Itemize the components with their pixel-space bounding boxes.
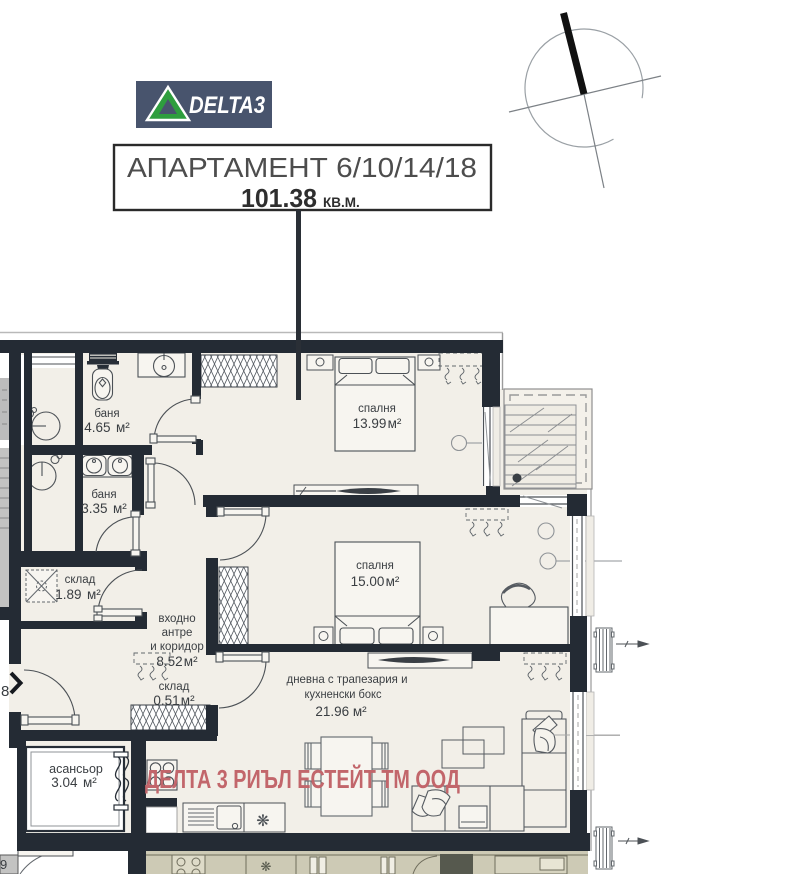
svg-text:1.89 м²: 1.89 м² [55,587,101,602]
svg-text:асансьор: асансьор [49,762,103,776]
svg-text:15.00 м²: 15.00 м² [351,574,400,589]
svg-text:АПАРТАМЕНТ 6/10/14/18: АПАРТАМЕНТ 6/10/14/18 [127,152,477,183]
svg-text:13.99 м²: 13.99 м² [353,416,402,431]
svg-text:баня: баня [94,408,119,420]
svg-text:КВ.М.: КВ.М. [323,195,360,210]
svg-text:8: 8 [1,683,9,700]
svg-text:ДЕЛТА 3 РИЪЛ ЕСТЕЙТ ТМ ООД: ДЕЛТА 3 РИЪЛ ЕСТЕЙТ ТМ ООД [145,764,460,794]
svg-text:8.52 м²: 8.52 м² [156,654,198,669]
svg-text:склад: склад [65,574,96,586]
svg-text:спалня: спалня [356,560,394,572]
svg-text:3.04 м²: 3.04 м² [51,775,97,790]
svg-text:21.96 м²: 21.96 м² [315,704,367,719]
svg-text:3.35 м²: 3.35 м² [81,501,127,516]
svg-text:баня: баня [91,489,116,501]
svg-text:9: 9 [0,857,7,872]
svg-text:антре: антре [162,627,193,639]
svg-text:101.38: 101.38 [241,183,317,213]
svg-text:4.65 м²: 4.65 м² [84,420,130,435]
svg-text:склад: склад [159,681,190,693]
svg-text:0.51 м²: 0.51 м² [153,693,195,708]
svg-text:и коридор: и коридор [150,641,204,653]
svg-text:DELTA3: DELTA3 [189,92,266,119]
svg-text:входно: входно [158,613,195,625]
svg-text:спалня: спалня [358,403,396,415]
svg-text:❋: ❋ [256,813,269,830]
svg-text:❋: ❋ [261,859,272,874]
svg-text:дневна с трапезария и: дневна с трапезария и [287,672,408,686]
svg-text:кухненски бокс: кухненски бокс [305,687,382,701]
